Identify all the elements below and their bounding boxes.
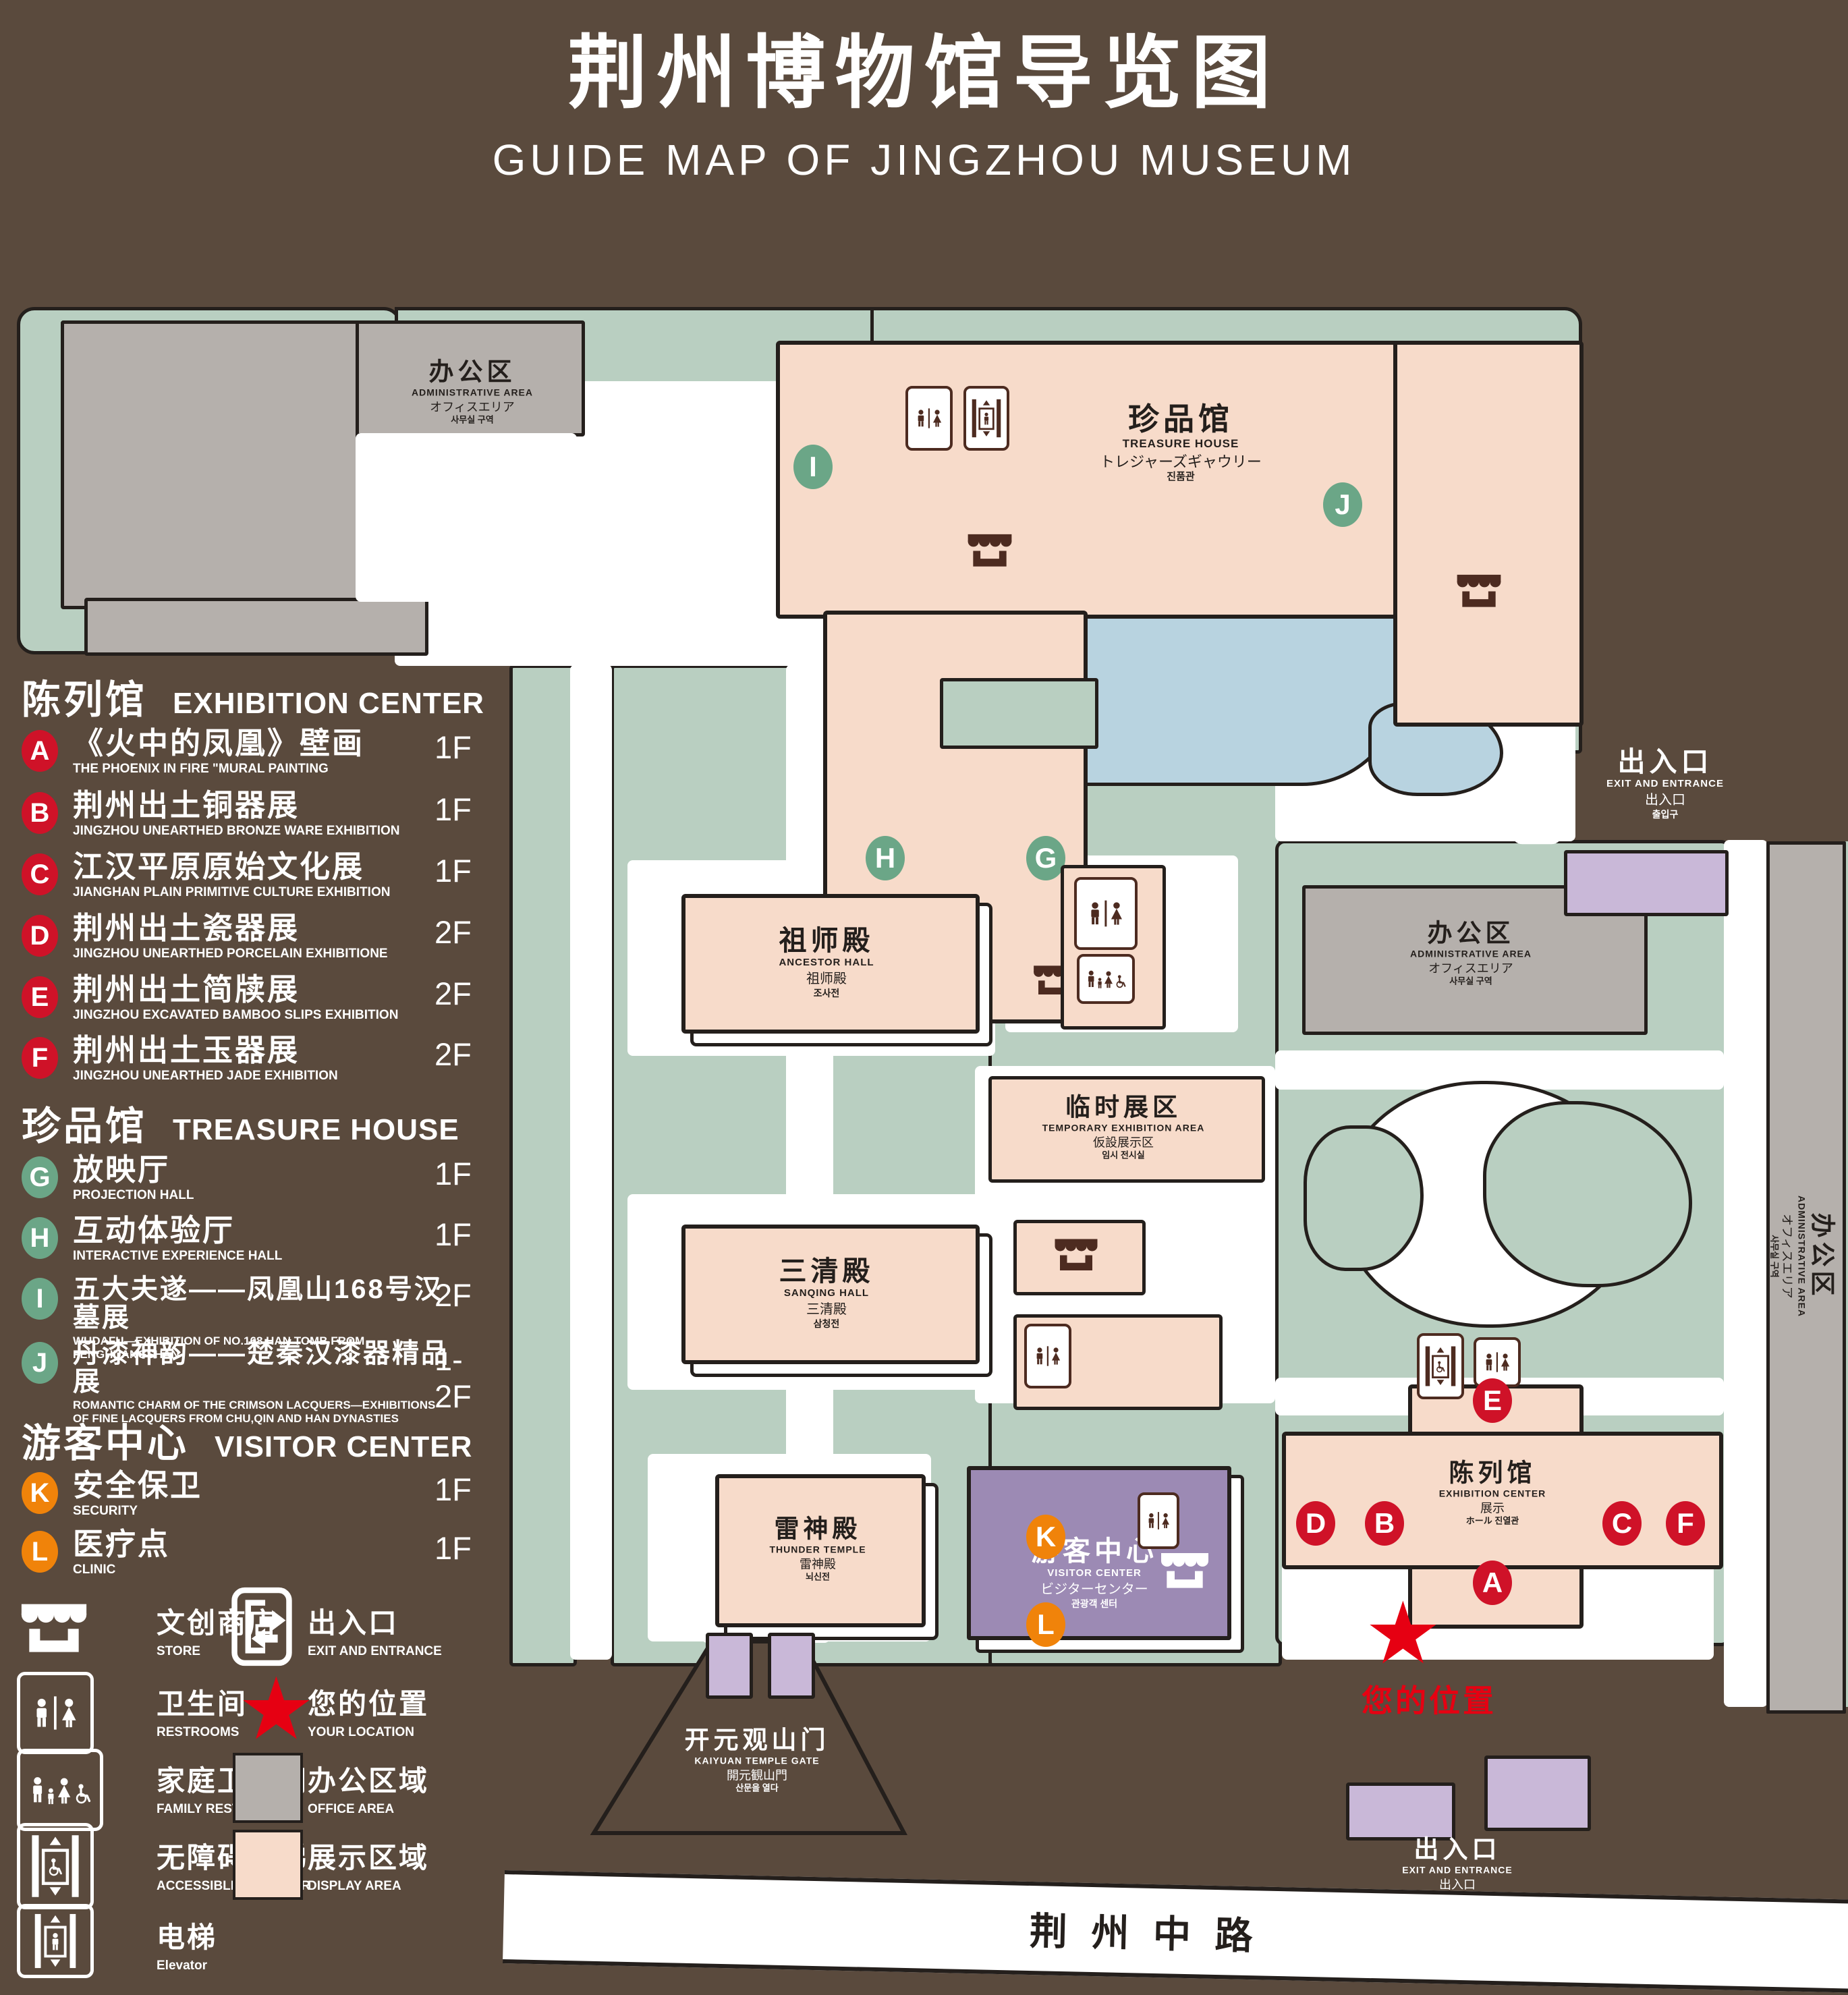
legend-visitor-en: VISITOR CENTER — [215, 1430, 472, 1464]
legend-item-l: L 医疗点 CLINIC 1F — [22, 1528, 494, 1586]
building-entrance-south-east — [1484, 1755, 1591, 1831]
building-entrance-ne — [1564, 850, 1729, 916]
label-admin-strip-jp: オフィスエリア — [1779, 1196, 1793, 1317]
label-admin-nw-jp: オフィスエリア — [412, 401, 533, 415]
label-visitor-jp: ビジターセンター — [1031, 1582, 1158, 1598]
office-area-swatch — [233, 1753, 303, 1823]
legend-d-cn: 荆州出土瓷器展 — [73, 912, 430, 944]
display-area-swatch — [233, 1830, 303, 1900]
path-west-axis — [570, 665, 612, 1660]
label-exhibition-kr: ホール 진열관 — [1439, 1516, 1546, 1526]
legend-section-exhibition: 陈列馆 EXHIBITION CENTER — [22, 668, 484, 725]
label-ancestor-en: ANCESTOR HALL — [779, 957, 874, 969]
legend-k-floor: 1F — [435, 1471, 472, 1508]
label-admin-east-cn: 办公区 — [1410, 919, 1532, 949]
label-sanqing-hall: 三清殿 SANQING HALL 三清殿 삼청전 — [779, 1255, 874, 1329]
legend-item-a: A 《火中的凤凰》壁画 THE PHOENIX IN FIRE "MURAL P… — [22, 727, 494, 785]
legend-item-i: I 五大夫遂——凤凰山168号汉墓展 WUDAFU—EXHIBITION OF … — [22, 1275, 494, 1333]
page-subtitle: GUIDE MAP OF JINGZHOU MUSEUM — [0, 135, 1848, 185]
map-marker-h: H — [866, 836, 905, 880]
legend-item-g: G 放映厅 PROJECTION HALL 1F — [22, 1154, 494, 1212]
legend-d-floor: 2F — [435, 914, 472, 951]
badge-a: A — [22, 730, 58, 772]
label-gate-jp: 開元観山門 — [685, 1769, 830, 1783]
label-admin-nw-cn: 办公区 — [412, 358, 533, 387]
restroom-icon — [1074, 877, 1138, 950]
legend-exit-en: EXIT AND ENTRANCE — [308, 1644, 442, 1659]
legend-k-cn: 安全保卫 — [73, 1469, 430, 1501]
label-exit-ne-kr: 출입구 — [1606, 809, 1724, 820]
badge-i: I — [22, 1278, 58, 1320]
terrace-treasure-wing — [940, 678, 1098, 749]
path-east-corridor — [1724, 840, 1768, 1707]
label-exit-ne-en: EXIT AND ENTRANCE — [1606, 778, 1724, 790]
label-treasure-cn: 珍品馆 — [1100, 401, 1262, 437]
legend-display-area: 展示区域 DISPLAY AREA — [308, 1835, 429, 1894]
legend-b-en: JINGZHOU UNEARTHED BRONZE WARE EXHIBITIO… — [73, 824, 430, 839]
label-visitor-en: VISITOR CENTER — [1031, 1567, 1158, 1579]
gate-pillar-east — [768, 1633, 815, 1699]
legend-treasure-en: TREASURE HOUSE — [173, 1113, 459, 1147]
legend-elevator-cn: 电梯 — [157, 1915, 217, 1956]
legend-e-floor: 2F — [435, 975, 472, 1012]
building-admin-nw-foot — [84, 598, 428, 656]
legend-j-cn: 丹漆神韵——楚秦汉漆器精品展 — [73, 1339, 451, 1396]
legend-exit-cn: 出入口 — [308, 1600, 442, 1641]
legend-l-cn: 医疗点 — [73, 1528, 430, 1560]
accessible-elevator-icon — [1417, 1333, 1464, 1399]
legend-l-en: CLINIC — [73, 1563, 430, 1577]
legend-e-cn: 荆州出土简牍展 — [73, 974, 430, 1005]
store-icon — [965, 532, 1015, 568]
map-marker-e: E — [1473, 1378, 1512, 1423]
accessible-elevator-icon — [17, 1823, 94, 1909]
legend-a-en: THE PHOENIX IN FIRE "MURAL PAINTING — [73, 762, 430, 777]
legend-location: 您的位置 YOUR LOCATION — [308, 1681, 429, 1740]
label-admin-east: 办公区 ADMINISTRATIVE AREA オフィスエリア 사무실 구역 — [1410, 919, 1532, 987]
building-treasure-main — [776, 341, 1401, 619]
elevator-icon — [17, 1904, 94, 1978]
label-exhibition-center: 陈列馆 EXHIBITION CENTER 展示 ホール 진열관 — [1439, 1459, 1546, 1527]
legend-g-cn: 放映厅 — [73, 1154, 430, 1185]
legend-i-floor: 2F — [435, 1276, 472, 1314]
legend-section-visitor: 游客中心 VISITOR CENTER — [22, 1411, 472, 1468]
legend-treasure-cn: 珍品馆 — [22, 1094, 147, 1151]
label-treasure-kr: 진품관 — [1100, 471, 1262, 483]
map-marker-b: B — [1365, 1501, 1404, 1546]
family-restroom-icon — [17, 1749, 103, 1831]
label-exit-s-cn: 出入口 — [1402, 1835, 1513, 1865]
store-icon — [1454, 572, 1504, 609]
restroom-icon — [17, 1672, 94, 1754]
label-admin-nw-kr: 사무실 구역 — [412, 415, 533, 425]
page-title: 荆州博物馆导览图 — [0, 8, 1848, 123]
label-sanqing-jp: 三清殿 — [779, 1302, 874, 1318]
label-exhibition-jp: 展示 — [1439, 1502, 1546, 1516]
legend-h-floor: 1F — [435, 1216, 472, 1253]
legend-restroom-en: RESTROOMS — [157, 1725, 248, 1740]
legend-j-floor: 1-2F — [435, 1341, 494, 1415]
label-ancestor-cn: 祖师殿 — [779, 924, 874, 957]
label-temporary-cn: 临时展区 — [1042, 1093, 1205, 1123]
badge-j: J — [22, 1342, 58, 1384]
legend-display-en: DISPLAY AREA — [308, 1879, 429, 1894]
legend-h-cn: 互动体验厅 — [73, 1214, 430, 1246]
courtyard-admin-nw — [356, 433, 577, 602]
building-entrance-south-west — [1346, 1782, 1455, 1841]
badge-d: D — [22, 915, 58, 957]
label-admin-east-en: ADMINISTRATIVE AREA — [1410, 948, 1532, 959]
store-icon — [1158, 1550, 1212, 1590]
location-star-icon: ★ — [237, 1666, 315, 1753]
badge-b: B — [22, 792, 58, 834]
map-marker-j: J — [1323, 482, 1362, 527]
legend-location-cn: 您的位置 — [308, 1681, 429, 1722]
label-admin-east-jp: オフィスエリア — [1410, 962, 1532, 976]
legend-i-cn: 五大夫遂——凤凰山168号汉墓展 — [73, 1275, 451, 1332]
map-marker-l: L — [1026, 1602, 1065, 1647]
legend-item-b: B 荆州出土铜器展 JINGZHOU UNEARTHED BRONZE WARE… — [22, 789, 494, 847]
legend-b-floor: 1F — [435, 791, 472, 828]
label-gate-kr: 산문을 열다 — [685, 1783, 830, 1793]
map-marker-d: D — [1296, 1501, 1335, 1546]
legend-visitor-cn: 游客中心 — [22, 1411, 189, 1468]
label-temporary-kr: 임시 전시실 — [1042, 1150, 1205, 1160]
legend-b-cn: 荆州出土铜器展 — [73, 789, 430, 821]
label-exit-s-en: EXIT AND ENTRANCE — [1402, 1864, 1513, 1876]
legend-restroom-cn: 卫生间 — [157, 1681, 248, 1722]
map-marker-g: G — [1026, 836, 1065, 880]
legend-f-floor: 2F — [435, 1036, 472, 1073]
map-marker-i: I — [793, 445, 833, 489]
road-jingzhou-middle: 荆 州 中 路 — [503, 1870, 1848, 1995]
label-thunder-en: THUNDER TEMPLE — [769, 1544, 866, 1555]
legend-h-en: INTERACTIVE EXPERIENCE HALL — [73, 1249, 430, 1264]
building-treasure-east — [1393, 341, 1584, 727]
label-admin-strip-kr: 사무실 구역 — [1769, 1196, 1779, 1317]
your-location-star-icon: ★ — [1364, 1591, 1442, 1677]
legend-f-cn: 荆州出土玉器展 — [73, 1034, 430, 1066]
building-admin-nw-wing — [61, 320, 359, 609]
legend-k-en: SECURITY — [73, 1504, 430, 1519]
legend-d-en: JINGZHOU UNEARTHED PORCELAIN EXHIBITIONE — [73, 947, 430, 961]
legend-g-en: PROJECTION HALL — [73, 1188, 430, 1203]
legend-item-e: E 荆州出土简牍展 JINGZHOU EXCAVATED BAMBOO SLIP… — [22, 974, 494, 1032]
legend-a-floor: 1F — [435, 729, 472, 766]
label-sanqing-cn: 三清殿 — [779, 1255, 874, 1287]
label-admin-strip-en: ADMINISTRATIVE AREA — [1796, 1196, 1808, 1317]
legend-c-floor: 1F — [435, 852, 472, 889]
label-gate-cn: 开元观山门 — [685, 1726, 830, 1755]
legend-g-floor: 1F — [435, 1155, 472, 1192]
store-icon — [17, 1600, 91, 1654]
restroom-icon — [1138, 1492, 1179, 1549]
label-thunder-temple: 雷神殿 THUNDER TEMPLE 雷神殿 뇌신전 — [769, 1515, 866, 1583]
legend-item-c: C 江汉平原原始文化展 JIANGHAN PLAIN PRIMITIVE CUL… — [22, 851, 494, 909]
park-block-west-strip — [509, 665, 577, 1666]
label-ancestor-jp: 祖师殿 — [779, 972, 874, 988]
restroom-icon — [905, 386, 953, 451]
label-admin-nw: 办公区 ADMINISTRATIVE AREA オフィスエリア 사무실 구역 — [412, 358, 533, 426]
label-temporary-jp: 仮設展示区 — [1042, 1136, 1205, 1150]
elevator-icon — [963, 386, 1009, 451]
your-location-label: 您的位置 — [1362, 1677, 1496, 1721]
label-treasure-en: TREASURE HOUSE — [1100, 437, 1262, 451]
legend-item-f: F 荆州出土玉器展 JINGZHOU UNEARTHED JADE EXHIBI… — [22, 1034, 494, 1092]
legend-item-k: K 安全保卫 SECURITY 1F — [22, 1469, 494, 1527]
label-gate: 开元观山门 KAIYUAN TEMPLE GATE 開元観山門 산문을 열다 — [685, 1726, 830, 1794]
legend-section-treasure: 珍品馆 TREASURE HOUSE — [22, 1094, 459, 1151]
label-temporary-en: TEMPORARY EXHIBITION AREA — [1042, 1122, 1205, 1133]
badge-k: K — [22, 1472, 58, 1514]
label-thunder-jp: 雷神殿 — [769, 1558, 866, 1572]
label-thunder-cn: 雷神殿 — [769, 1515, 866, 1544]
legend-c-cn: 江汉平原原始文化展 — [73, 851, 430, 882]
badge-c: C — [22, 853, 58, 895]
label-temporary-area: 临时展区 TEMPORARY EXHIBITION AREA 仮設展示区 임시 … — [1042, 1093, 1205, 1161]
badge-f: F — [22, 1037, 58, 1079]
label-exit-northeast: 出入口 EXIT AND ENTRANCE 出入口 출입구 — [1606, 746, 1724, 820]
badge-h: H — [22, 1217, 58, 1259]
legend-item-d: D 荆州出土瓷器展 JINGZHOU UNEARTHED PORCELAIN E… — [22, 912, 494, 970]
badge-g: G — [22, 1156, 58, 1198]
label-exit-ne-cn: 出入口 — [1606, 746, 1724, 778]
label-sanqing-en: SANQING HALL — [779, 1287, 874, 1299]
badge-l: L — [22, 1531, 58, 1573]
exit-icon — [231, 1587, 293, 1666]
legend-c-en: JIANGHAN PLAIN PRIMITIVE CULTURE EXHIBIT… — [73, 885, 430, 900]
label-admin-nw-en: ADMINISTRATIVE AREA — [412, 387, 533, 398]
label-treasure-house: 珍品馆 TREASURE HOUSE トレジャーズギャウリー 진품관 — [1100, 401, 1262, 483]
map-marker-a: A — [1473, 1561, 1512, 1605]
label-thunder-kr: 뇌신전 — [769, 1572, 866, 1582]
legend-e-en: JINGZHOU EXCAVATED BAMBOO SLIPS EXHIBITI… — [73, 1008, 430, 1023]
label-ancestor-kr: 조사전 — [779, 988, 874, 999]
label-exhibition-en: EXHIBITION CENTER — [1439, 1488, 1546, 1499]
badge-e: E — [22, 976, 58, 1018]
legend-elevator-en: Elevator — [157, 1959, 217, 1973]
legend-location-en: YOUR LOCATION — [308, 1725, 429, 1740]
legend-office-en: OFFICE AREA — [308, 1802, 429, 1817]
restroom-icon — [1024, 1324, 1071, 1388]
legend-elevator: 电梯 Elevator — [157, 1915, 217, 1973]
legend-a-cn: 《火中的凤凰》壁画 — [73, 727, 430, 759]
legend-office-area: 办公区域 OFFICE AREA — [308, 1758, 429, 1817]
legend-exit: 出入口 EXIT AND ENTRANCE — [308, 1600, 442, 1659]
label-exhibition-cn: 陈列馆 — [1439, 1459, 1546, 1488]
label-gate-en: KAIYUAN TEMPLE GATE — [685, 1755, 830, 1766]
label-admin-east-kr: 사무실 구역 — [1410, 976, 1532, 986]
legend-exhibition-cn: 陈列馆 — [22, 668, 147, 725]
label-sanqing-kr: 삼청전 — [779, 1318, 874, 1330]
legend-f-en: JINGZHOU UNEARTHED JADE EXHIBITION — [73, 1069, 430, 1084]
exit-icon — [1510, 777, 1564, 845]
legend-l-floor: 1F — [435, 1529, 472, 1567]
family-restroom-icon — [1077, 954, 1135, 1004]
legend-item-h: H 互动体验厅 INTERACTIVE EXPERIENCE HALL 1F — [22, 1214, 494, 1272]
label-ancestor-hall: 祖师殿 ANCESTOR HALL 祖师殿 조사전 — [779, 924, 874, 999]
map-marker-k: K — [1026, 1515, 1065, 1559]
store-icon — [1052, 1237, 1100, 1272]
legend-exhibition-en: EXHIBITION CENTER — [173, 687, 484, 721]
label-treasure-jp: トレジャーズギャウリー — [1100, 453, 1262, 471]
legend-restroom: 卫生间 RESTROOMS — [157, 1681, 248, 1740]
label-admin-strip-cn: 办公区 — [1808, 1196, 1837, 1317]
map-marker-f: F — [1666, 1501, 1705, 1546]
label-admin-strip: 办公区 ADMINISTRATIVE AREA オフィスエリア 사무실 구역 — [1769, 1196, 1837, 1317]
label-exit-ne-jp: 出入口 — [1606, 793, 1724, 809]
map-marker-c: C — [1602, 1501, 1642, 1546]
legend-office-cn: 办公区域 — [308, 1758, 429, 1799]
gate-pillar-west — [706, 1633, 753, 1699]
legend-display-cn: 展示区域 — [308, 1835, 429, 1876]
road-name: 荆 州 中 路 — [1029, 1901, 1260, 1961]
